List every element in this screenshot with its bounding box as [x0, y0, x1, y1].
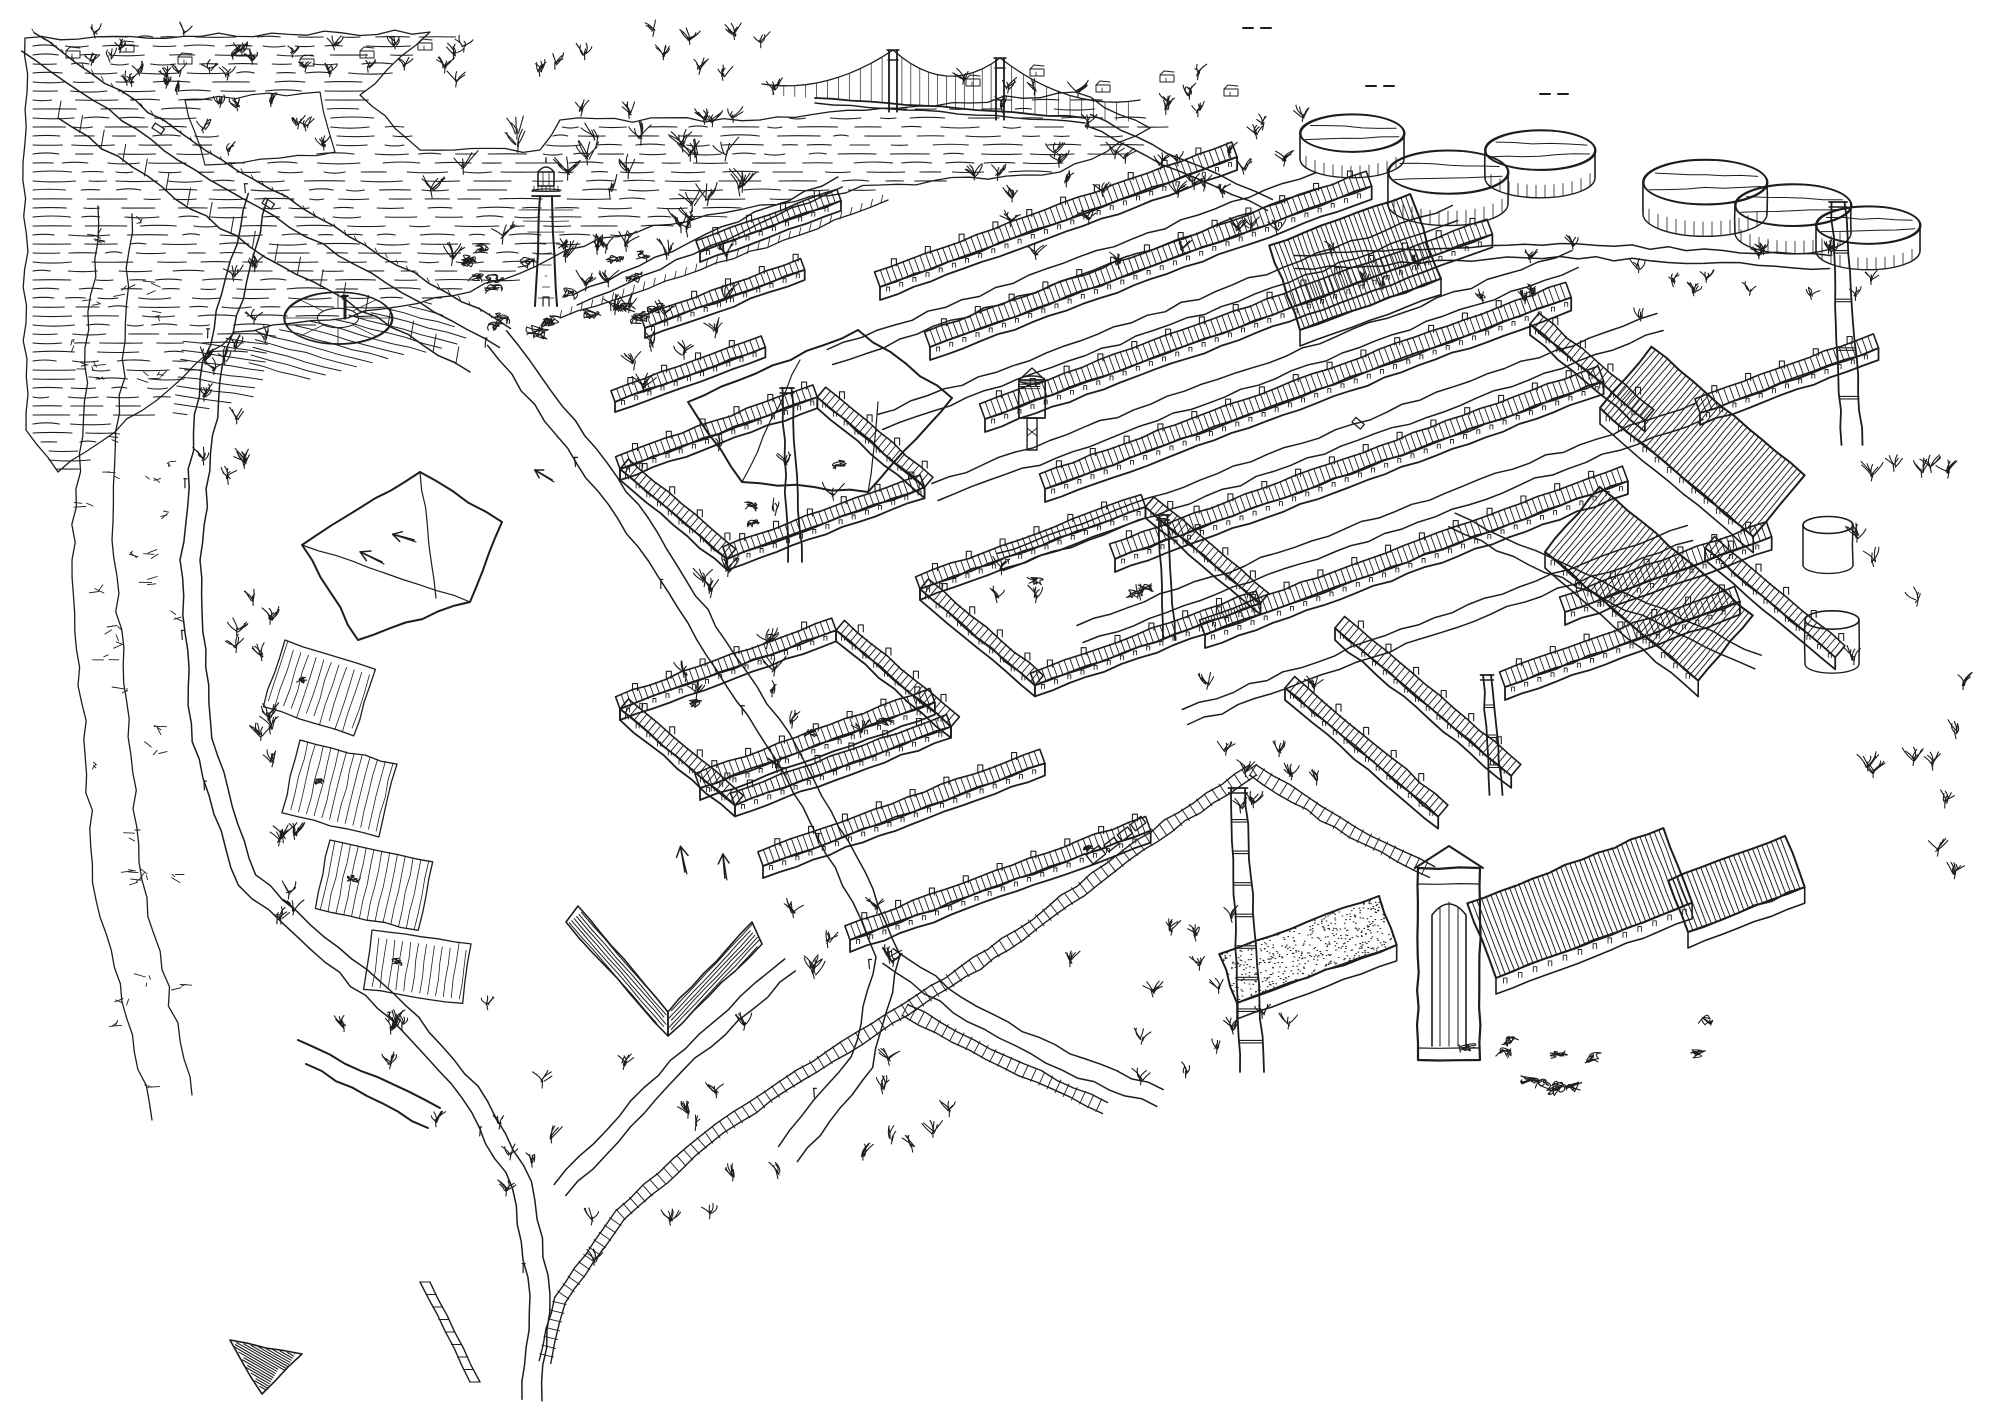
ink-aerial-town-drawing — [0, 0, 2000, 1415]
drawing-canvas — [0, 0, 2000, 1415]
